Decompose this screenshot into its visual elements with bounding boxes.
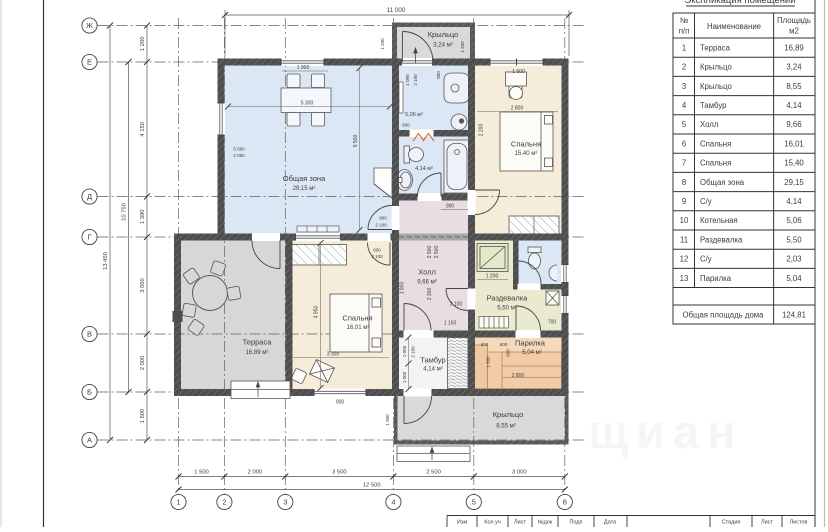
svg-text:3: 3 bbox=[682, 82, 686, 91]
svg-text:3 050: 3 050 bbox=[140, 278, 146, 293]
svg-text:13: 13 bbox=[680, 274, 689, 283]
svg-text:Парилка: Парилка bbox=[700, 274, 732, 283]
svg-text:1 150: 1 150 bbox=[444, 321, 457, 327]
svg-text:2 800: 2 800 bbox=[511, 106, 524, 112]
svg-text:Г: Г bbox=[87, 233, 91, 242]
svg-text:Спальня: Спальня bbox=[700, 159, 731, 168]
svg-text:Листов: Листов bbox=[790, 520, 808, 526]
svg-text:1 900: 1 900 bbox=[400, 282, 406, 295]
svg-text:900: 900 bbox=[336, 400, 345, 406]
svg-text:15,40: 15,40 bbox=[784, 159, 804, 168]
svg-text:Холл: Холл bbox=[418, 268, 436, 277]
svg-text:5 080: 5 080 bbox=[233, 147, 245, 152]
svg-text:4 950: 4 950 bbox=[314, 306, 320, 319]
svg-text:1 390: 1 390 bbox=[140, 210, 146, 225]
svg-text:2: 2 bbox=[682, 63, 686, 72]
svg-text:2 500: 2 500 bbox=[427, 246, 433, 259]
svg-text:5 500: 5 500 bbox=[353, 135, 359, 148]
svg-text:600: 600 bbox=[402, 123, 410, 128]
svg-text:В: В bbox=[87, 330, 92, 339]
svg-text:м2: м2 bbox=[789, 27, 799, 36]
svg-text:7: 7 bbox=[682, 159, 686, 168]
svg-text:Крыльцо: Крыльцо bbox=[700, 82, 732, 91]
svg-text:4: 4 bbox=[391, 498, 395, 507]
svg-text:Общая зона: Общая зона bbox=[700, 178, 745, 187]
svg-text:6: 6 bbox=[682, 139, 686, 148]
svg-text:1 500: 1 500 bbox=[140, 409, 146, 424]
svg-text:700: 700 bbox=[548, 320, 557, 326]
svg-text:С/у: С/у bbox=[700, 255, 712, 264]
svg-text:2 080: 2 080 bbox=[233, 153, 245, 158]
svg-text:Подп: Подп bbox=[569, 520, 582, 526]
svg-text:5,06: 5,06 bbox=[786, 216, 801, 225]
svg-text:3 000: 3 000 bbox=[512, 470, 527, 476]
svg-text:600: 600 bbox=[500, 342, 508, 347]
svg-text:1 500: 1 500 bbox=[194, 470, 209, 476]
svg-text:Котельная: Котельная bbox=[700, 216, 738, 225]
svg-text:Спальня: Спальня bbox=[342, 314, 372, 323]
svg-text:5: 5 bbox=[472, 498, 476, 507]
svg-text:600: 600 bbox=[481, 342, 489, 347]
svg-text:800: 800 bbox=[436, 71, 441, 79]
svg-text:Спальня: Спальня bbox=[700, 139, 731, 148]
svg-text:Ж: Ж bbox=[86, 21, 93, 30]
svg-text:№: № bbox=[680, 16, 688, 25]
svg-text:10 750: 10 750 bbox=[122, 203, 128, 221]
svg-text:124,81: 124,81 bbox=[782, 311, 806, 320]
svg-text:2 100: 2 100 bbox=[450, 302, 463, 308]
svg-text:щиан: щиан bbox=[588, 405, 743, 458]
svg-text:2: 2 bbox=[222, 498, 226, 507]
svg-text:Лист: Лист bbox=[761, 520, 773, 526]
svg-text:800: 800 bbox=[373, 248, 381, 253]
svg-text:13 450: 13 450 bbox=[103, 252, 109, 270]
svg-text:3: 3 bbox=[283, 498, 287, 507]
svg-text:Раздевалка: Раздевалка bbox=[487, 294, 529, 303]
svg-text:4,14 м²: 4,14 м² bbox=[415, 166, 433, 172]
svg-text:1: 1 bbox=[176, 498, 180, 507]
svg-text:п/п: п/п bbox=[679, 27, 690, 36]
svg-text:11: 11 bbox=[680, 235, 688, 244]
svg-text:1 000: 1 000 bbox=[405, 74, 410, 86]
svg-text:Дата: Дата bbox=[604, 520, 617, 526]
svg-text:4,14 м²: 4,14 м² bbox=[423, 367, 442, 373]
svg-text:6: 6 bbox=[563, 498, 567, 507]
svg-text:16,01: 16,01 bbox=[784, 139, 804, 148]
svg-text:2 300: 2 300 bbox=[427, 288, 433, 301]
svg-text:Изм: Изм bbox=[457, 520, 467, 526]
svg-text:Крыльцо: Крыльцо bbox=[428, 30, 459, 39]
svg-text:5 300: 5 300 bbox=[301, 101, 314, 107]
svg-text:8,55 м²: 8,55 м² bbox=[496, 424, 515, 430]
svg-text:8,55: 8,55 bbox=[786, 82, 802, 91]
svg-text:1: 1 bbox=[682, 43, 686, 52]
svg-text:Терраса: Терраса bbox=[243, 338, 273, 347]
svg-text:5,50 м²: 5,50 м² bbox=[497, 306, 516, 312]
svg-text:Общая площадь дома: Общая площадь дома bbox=[683, 311, 765, 320]
svg-text:Кол.уч: Кол.уч bbox=[484, 520, 501, 526]
svg-text:5,04 м²: 5,04 м² bbox=[522, 350, 541, 356]
svg-text:600: 600 bbox=[506, 349, 511, 357]
svg-text:9,66 м²: 9,66 м² bbox=[417, 280, 436, 286]
svg-text:Наименование: Наименование bbox=[707, 22, 761, 31]
svg-text:5,06 м²: 5,06 м² bbox=[405, 112, 423, 118]
svg-text:4,14: 4,14 bbox=[786, 101, 802, 110]
svg-text:900: 900 bbox=[446, 204, 455, 210]
svg-text:Стадия: Стадия bbox=[722, 520, 741, 526]
svg-text:А: А bbox=[87, 436, 92, 445]
svg-text:2,03: 2,03 bbox=[786, 255, 801, 264]
svg-text:Тамбур: Тамбур bbox=[420, 356, 445, 365]
svg-text:12: 12 bbox=[680, 255, 689, 264]
svg-text:Парилка: Парилка bbox=[515, 339, 546, 348]
svg-text:2 100: 2 100 bbox=[413, 74, 418, 86]
svg-text:Терраса: Терраса bbox=[700, 43, 731, 52]
svg-text:2 500: 2 500 bbox=[426, 470, 441, 476]
svg-text:8: 8 bbox=[682, 178, 686, 187]
svg-text:1 500: 1 500 bbox=[512, 69, 525, 75]
svg-text:Б: Б bbox=[87, 388, 92, 397]
svg-text:1 200: 1 200 bbox=[140, 37, 146, 52]
svg-text:2 000: 2 000 bbox=[248, 470, 263, 476]
svg-text:3,24: 3,24 bbox=[786, 63, 802, 72]
svg-text:Д: Д bbox=[87, 192, 92, 201]
svg-text:12 500: 12 500 bbox=[363, 483, 381, 489]
svg-text:29,15 м²: 29,15 м² bbox=[293, 186, 316, 192]
svg-text:4,14: 4,14 bbox=[786, 197, 802, 206]
svg-text:15,40 м²: 15,40 м² bbox=[515, 151, 538, 157]
svg-text:5: 5 bbox=[682, 120, 687, 129]
svg-text:800: 800 bbox=[379, 216, 387, 221]
svg-text:1 000: 1 000 bbox=[402, 371, 407, 383]
svg-text:Холл: Холл bbox=[700, 120, 719, 129]
svg-text:Раздевалка: Раздевалка bbox=[700, 235, 743, 244]
svg-text:2 500: 2 500 bbox=[434, 246, 440, 259]
svg-text:11 000: 11 000 bbox=[387, 7, 406, 14]
svg-text:№док: №док bbox=[538, 520, 553, 526]
svg-text:3 500: 3 500 bbox=[332, 470, 347, 476]
svg-text:2 100: 2 100 bbox=[411, 346, 416, 358]
svg-text:1 000: 1 000 bbox=[402, 345, 407, 357]
svg-text:Экспликация помещений: Экспликация помещений bbox=[684, 0, 795, 6]
svg-text:1 200: 1 200 bbox=[460, 41, 465, 53]
svg-text:1 900: 1 900 bbox=[385, 414, 390, 426]
svg-text:16,01 м²: 16,01 м² bbox=[347, 325, 370, 331]
svg-text:Крыльцо: Крыльцо bbox=[493, 410, 524, 419]
svg-text:2 100: 2 100 bbox=[375, 223, 387, 228]
svg-text:Тамбур: Тамбур bbox=[700, 101, 727, 110]
svg-text:3,24 м²: 3,24 м² bbox=[433, 43, 452, 49]
svg-text:Е: Е bbox=[87, 58, 92, 67]
svg-text:9,66: 9,66 bbox=[786, 120, 801, 129]
svg-text:1 200: 1 200 bbox=[380, 38, 385, 50]
svg-text:Общая зона: Общая зона bbox=[283, 174, 326, 183]
svg-text:1 800: 1 800 bbox=[486, 356, 491, 368]
svg-text:2 800: 2 800 bbox=[512, 373, 525, 379]
svg-text:16,89: 16,89 bbox=[784, 43, 804, 52]
svg-text:3 300: 3 300 bbox=[327, 352, 340, 358]
svg-text:С/у: С/у bbox=[700, 197, 712, 206]
svg-text:2 100: 2 100 bbox=[371, 254, 383, 259]
svg-text:Крыльцо: Крыльцо bbox=[700, 63, 732, 72]
svg-text:4: 4 bbox=[682, 101, 687, 110]
svg-text:2 200: 2 200 bbox=[479, 124, 485, 137]
svg-text:1 200: 1 200 bbox=[486, 274, 499, 280]
svg-text:2 000: 2 000 bbox=[140, 356, 146, 371]
svg-text:5,04: 5,04 bbox=[786, 274, 802, 283]
svg-text:1 900: 1 900 bbox=[297, 65, 310, 71]
svg-text:Лист: Лист bbox=[514, 520, 526, 526]
svg-text:5,50: 5,50 bbox=[786, 235, 802, 244]
svg-text:16,89 м²: 16,89 м² bbox=[246, 350, 269, 356]
svg-text:Спальня: Спальня bbox=[511, 140, 541, 149]
svg-text:9: 9 bbox=[682, 197, 686, 206]
svg-text:Площадь: Площадь bbox=[777, 16, 811, 25]
svg-text:29,15: 29,15 bbox=[784, 178, 804, 187]
svg-text:10: 10 bbox=[680, 216, 689, 225]
svg-text:4 150: 4 150 bbox=[140, 122, 146, 137]
